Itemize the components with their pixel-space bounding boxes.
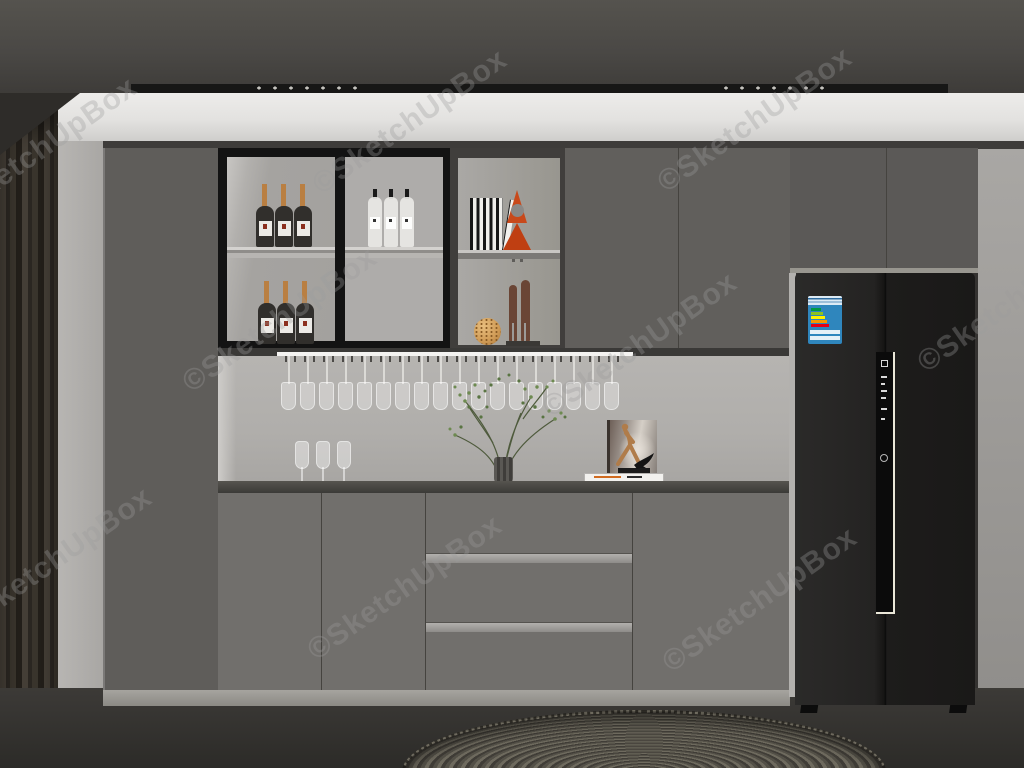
door-seam bbox=[886, 148, 887, 268]
hanging-wine-glass bbox=[604, 356, 619, 409]
hanging-wine-glass bbox=[395, 356, 410, 409]
counter-shadow bbox=[218, 481, 790, 493]
upper-cabinet-doors bbox=[565, 148, 790, 348]
decor-shelf-board bbox=[458, 250, 560, 259]
white-bottle bbox=[368, 189, 382, 247]
drawer-handle-strip bbox=[426, 553, 632, 563]
hanging-wine-glass bbox=[376, 356, 391, 409]
hanging-wine-glass bbox=[585, 356, 600, 409]
energy-bar bbox=[811, 320, 827, 323]
ceiling bbox=[0, 0, 1024, 95]
hanging-wine-glass bbox=[319, 356, 334, 409]
wine-shelf bbox=[227, 247, 335, 258]
ceiling-vent-lights bbox=[719, 83, 834, 93]
walking-figure-art bbox=[610, 420, 657, 475]
door-seam bbox=[321, 493, 322, 690]
white-bottle bbox=[400, 189, 414, 247]
art-print bbox=[607, 420, 657, 475]
energy-bar bbox=[811, 308, 821, 311]
lower-cabinet-doors bbox=[218, 493, 790, 690]
red-wine-bottle bbox=[294, 184, 312, 247]
energy-bar bbox=[811, 324, 829, 327]
door-seam bbox=[425, 493, 426, 690]
striped-books bbox=[470, 198, 503, 250]
wine-shelf bbox=[345, 247, 443, 258]
energy-label-table-row bbox=[810, 330, 840, 334]
energy-bar bbox=[811, 316, 825, 319]
fridge-display-panel bbox=[876, 352, 895, 614]
door-seam bbox=[678, 148, 679, 348]
bar-side-panel bbox=[218, 356, 236, 481]
tall-cabinet-left bbox=[103, 148, 220, 690]
baseboard bbox=[103, 690, 790, 706]
white-bottle bbox=[384, 189, 398, 247]
hanging-wine-glass bbox=[357, 356, 372, 409]
kitchen-bar-rendering: ©SketchUpBox ©SketchUpBox ©SketchUpBox ©… bbox=[0, 0, 1024, 768]
energy-label-header bbox=[808, 296, 842, 305]
hanging-wine-glass bbox=[338, 356, 353, 409]
ceiling-vent-lights bbox=[252, 83, 367, 93]
energy-bar bbox=[811, 312, 823, 315]
right-wall bbox=[978, 148, 1024, 693]
curtain bbox=[0, 98, 58, 715]
red-wine-bottle bbox=[256, 184, 274, 247]
hanging-wine-glass bbox=[414, 356, 429, 409]
over-fridge-cabinet bbox=[790, 148, 978, 268]
wood-figurines bbox=[506, 276, 540, 346]
hanging-wine-glass bbox=[300, 356, 315, 409]
door-seam bbox=[632, 493, 633, 690]
soffit bbox=[0, 93, 1024, 143]
hanging-wine-glass bbox=[281, 356, 296, 409]
energy-efficiency-label bbox=[808, 296, 842, 344]
red-wine-bottle bbox=[277, 281, 295, 344]
rattan-ball bbox=[474, 318, 501, 345]
energy-label-table-row bbox=[810, 336, 840, 340]
red-wine-bottle bbox=[258, 281, 276, 344]
left-wall bbox=[50, 141, 105, 701]
red-wine-bottle bbox=[275, 184, 293, 247]
red-wine-bottle bbox=[296, 281, 314, 344]
drawer-handle-strip bbox=[426, 622, 632, 632]
